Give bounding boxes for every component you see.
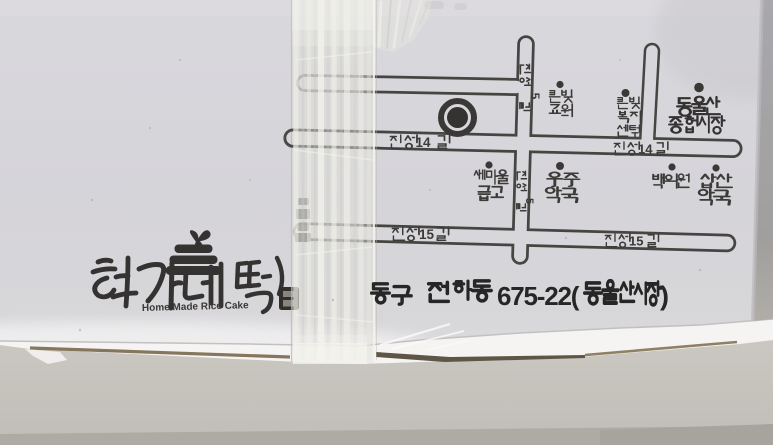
svg-text:5: 5 <box>523 198 535 204</box>
svg-text:14: 14 <box>416 135 432 150</box>
svg-text:): ) <box>660 281 669 311</box>
svg-text:15: 15 <box>629 234 643 249</box>
svg-text:675-22(: 675-22( <box>497 281 580 311</box>
svg-text:15: 15 <box>419 227 435 242</box>
svg-text:14: 14 <box>638 142 653 157</box>
svg-text:5: 5 <box>528 93 542 100</box>
